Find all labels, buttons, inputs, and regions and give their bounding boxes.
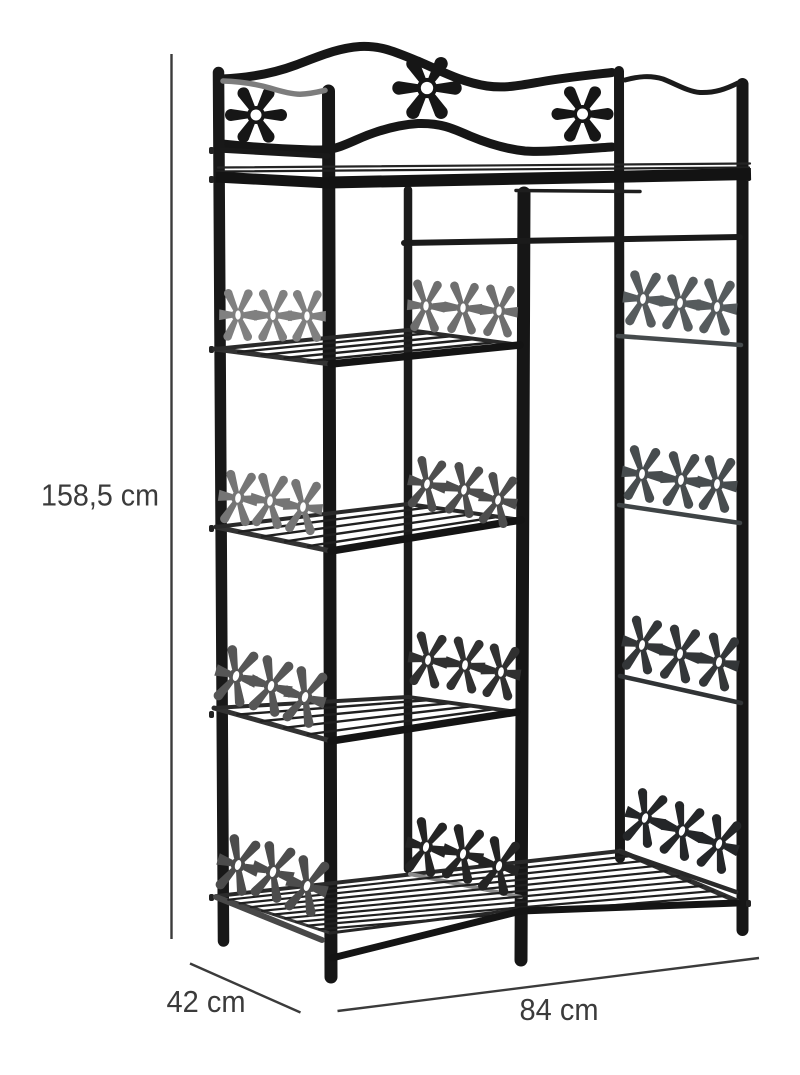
svg-text:84 cm: 84 cm (520, 993, 599, 1027)
svg-text:158,5 cm: 158,5 cm (41, 479, 159, 513)
svg-text:42 cm: 42 cm (167, 985, 246, 1019)
